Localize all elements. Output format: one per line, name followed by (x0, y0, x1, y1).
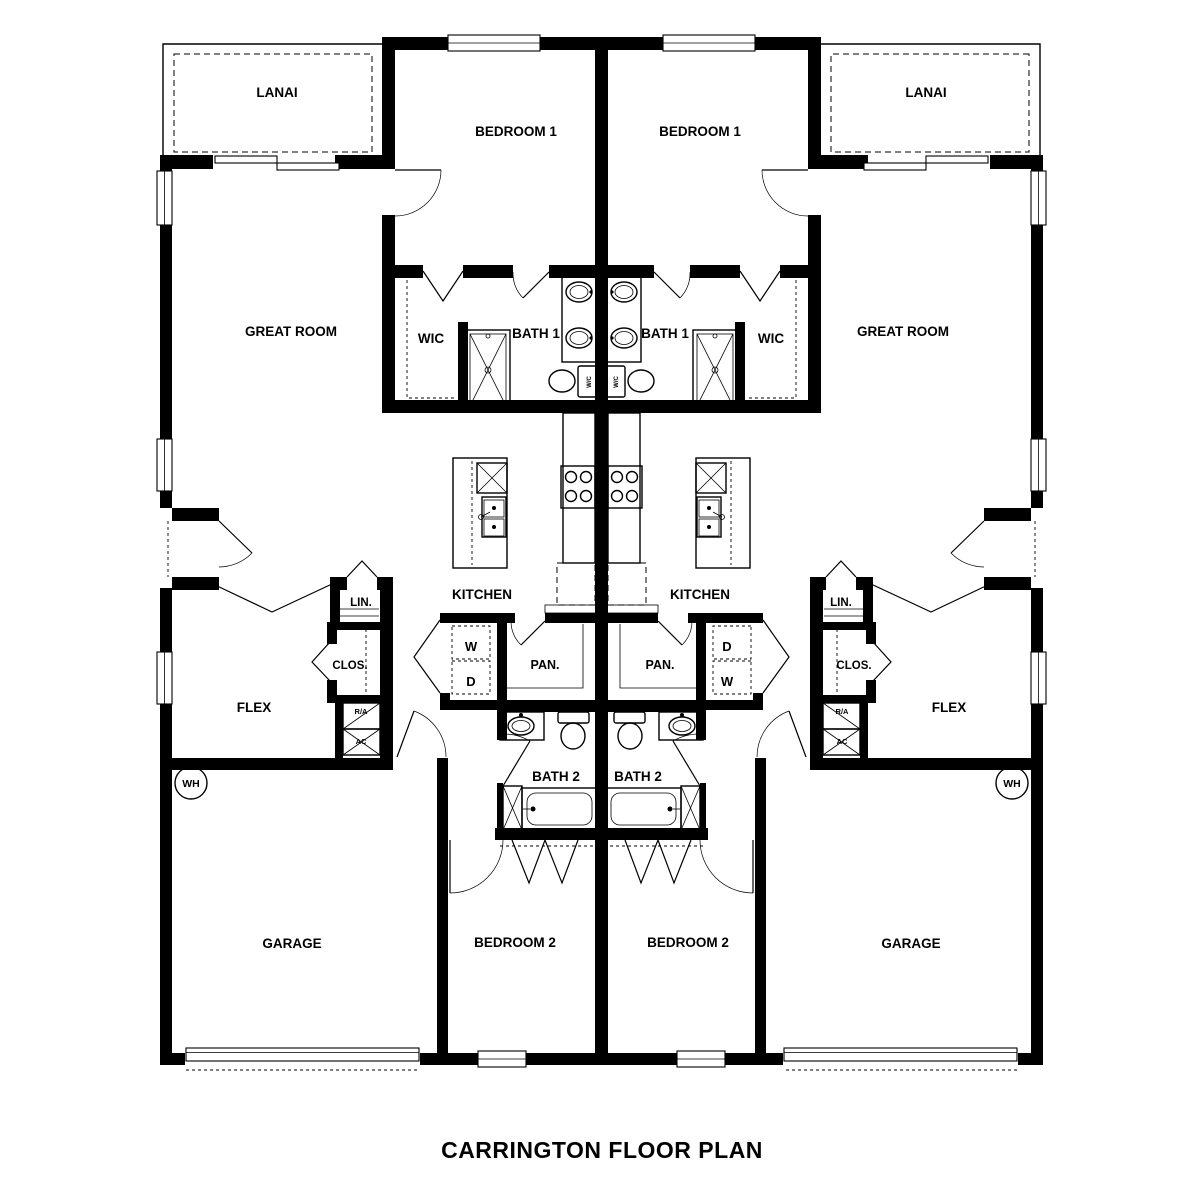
label-washer-right: W (721, 674, 734, 689)
label-linen-right: LIN. (830, 597, 852, 609)
label-bedroom1-left: BEDROOM 1 (475, 124, 557, 139)
label-lanai-left: LANAI (256, 85, 297, 100)
label-dryer-left: D (466, 674, 475, 689)
label-flex-left: FLEX (237, 700, 272, 715)
floor-plan-drawing: LANAI BEDROOM 1 GREAT ROOM WIC BATH 1 KI… (0, 0, 1200, 1200)
label-pantry-right: PAN. (646, 658, 675, 672)
label-wic-right: WIC (758, 331, 784, 346)
party-wall (595, 37, 608, 1065)
label-ac-left: AC (356, 737, 367, 746)
label-wic-left: WIC (418, 331, 444, 346)
label-flex-right: FLEX (932, 700, 967, 715)
label-closet-left: CLOS. (332, 660, 367, 672)
label-lanai-right: LANAI (905, 85, 946, 100)
label-great-room-right: GREAT ROOM (857, 324, 949, 339)
label-linen-left: LIN. (350, 597, 372, 609)
label-bedroom1-right: BEDROOM 1 (659, 124, 741, 139)
label-pantry-left: PAN. (531, 658, 560, 672)
label-bedroom2-left: BEDROOM 2 (474, 935, 556, 950)
label-bath1-left: BATH 1 (512, 326, 560, 341)
label-great-room-left: GREAT ROOM (245, 324, 337, 339)
label-dryer-right: D (722, 639, 731, 654)
label-garage-left: GARAGE (262, 936, 321, 951)
floor-plan-page: LANAI BEDROOM 1 GREAT ROOM WIC BATH 1 KI… (0, 0, 1200, 1200)
plan-title: CARRINGTON FLOOR PLAN (441, 1137, 763, 1163)
label-ac-right: AC (837, 737, 848, 746)
label-wc-right: W/C (614, 376, 620, 388)
label-water-heater-left: WH (182, 778, 200, 790)
label-bath2-right: BATH 2 (614, 769, 662, 784)
label-kitchen-right: KITCHEN (670, 587, 730, 602)
label-return-air-left: R/A (355, 707, 369, 716)
label-washer-left: W (465, 639, 478, 654)
label-bedroom2-right: BEDROOM 2 (647, 935, 729, 950)
label-closet-right: CLOS. (836, 660, 871, 672)
label-bath2-left: BATH 2 (532, 769, 580, 784)
label-kitchen-left: KITCHEN (452, 587, 512, 602)
label-wc-left: W/C (587, 376, 593, 388)
label-bath1-right: BATH 1 (641, 326, 689, 341)
label-water-heater-right: WH (1003, 778, 1021, 790)
label-return-air-right: R/A (836, 707, 850, 716)
label-garage-right: GARAGE (881, 936, 940, 951)
